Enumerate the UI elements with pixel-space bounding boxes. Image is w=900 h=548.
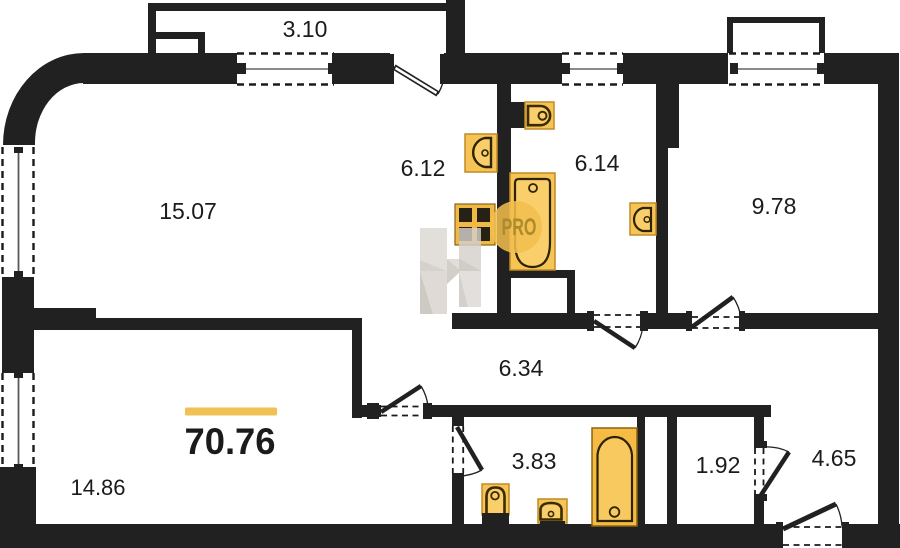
svg-text:70.76: 70.76	[185, 421, 276, 462]
svg-text:PRO: PRO	[502, 214, 537, 241]
svg-text:3.83: 3.83	[512, 448, 557, 474]
svg-text:1.92: 1.92	[696, 452, 741, 478]
svg-text:4.65: 4.65	[812, 445, 857, 471]
svg-text:15.07: 15.07	[159, 198, 217, 224]
svg-text:6.34: 6.34	[499, 355, 544, 381]
svg-text:6.12: 6.12	[401, 155, 446, 181]
svg-text:6.14: 6.14	[575, 150, 620, 176]
svg-text:14.86: 14.86	[70, 475, 125, 500]
svg-text:3.10: 3.10	[283, 16, 328, 42]
svg-text:9.78: 9.78	[752, 193, 797, 219]
